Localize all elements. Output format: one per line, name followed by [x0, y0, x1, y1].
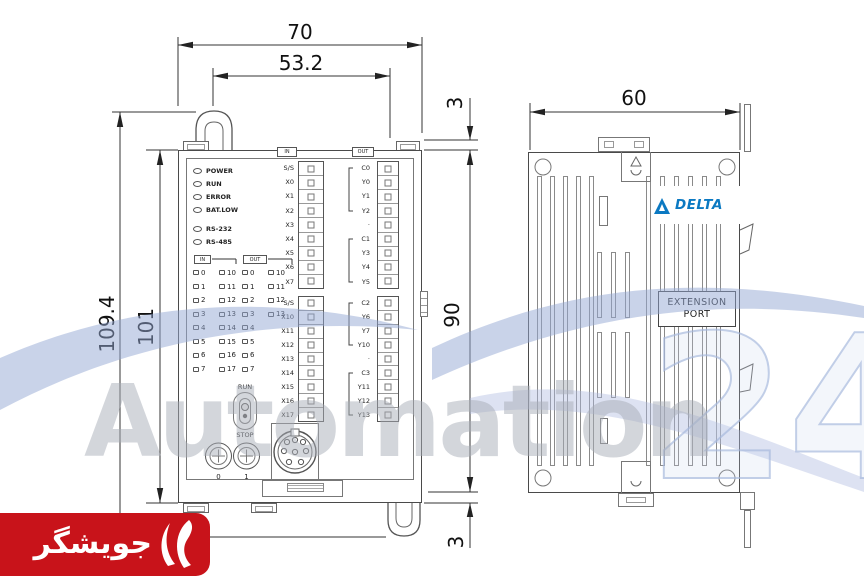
dim-rail-span: 90 — [440, 302, 464, 327]
dim-inner-width: 53.2 — [279, 51, 324, 75]
vendor-banner: جویشگر — [0, 513, 210, 576]
dim-total-height: 109.4 — [95, 295, 119, 352]
dimension-drawing: POWER RUN ERROR BAT.LOW RS-232 RS-485 IN… — [0, 0, 864, 576]
dim-side-width: 60 — [621, 86, 646, 110]
dimension-labels: 70 53.2 109.4 101 3 90 3 60 — [0, 0, 864, 576]
dim-gap-top: 3 — [443, 97, 467, 110]
dim-gap-bottom: 3 — [444, 536, 468, 549]
dim-body-height: 101 — [134, 308, 158, 346]
dim-top-width: 70 — [287, 20, 312, 44]
vendor-name: جویشگر — [34, 526, 152, 561]
vendor-logo-icon — [154, 519, 200, 569]
